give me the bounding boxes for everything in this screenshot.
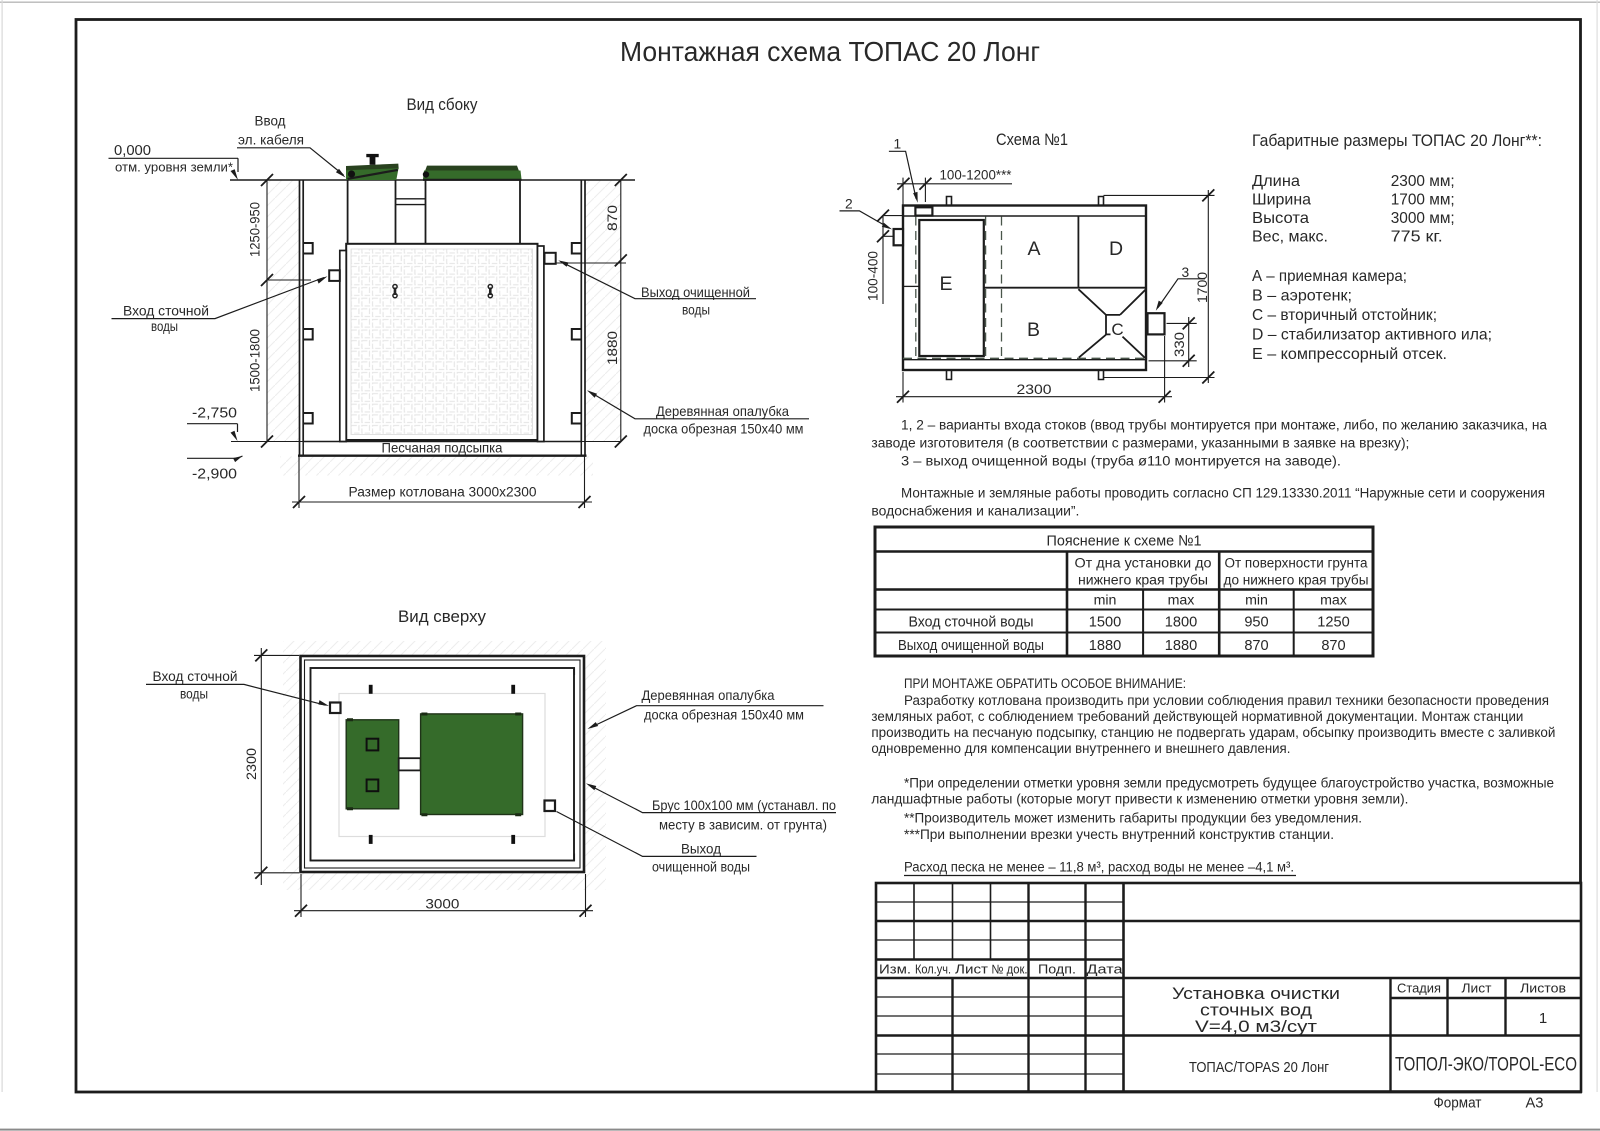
svg-text:Листов: Листов <box>1520 981 1566 996</box>
svg-text:Разработку котлована производи: Разработку котлована производить при усл… <box>904 693 1549 709</box>
svg-text:1700: 1700 <box>1195 272 1210 303</box>
svg-text:земляных работ, с соблюдением: земляных работ, с соблюдением требований… <box>871 709 1523 725</box>
svg-text:1500: 1500 <box>1089 615 1121 631</box>
svg-text:V=4,0 м3/сут: V=4,0 м3/сут <box>1195 1017 1317 1036</box>
svg-text:Монтажные и земляные работы пр: Монтажные и земляные работы проводить со… <box>901 486 1545 502</box>
svg-text:Вход сточной: Вход сточной <box>153 669 238 684</box>
svg-text:2300 мм;: 2300 мм; <box>1391 173 1455 190</box>
svg-text:1250-950: 1250-950 <box>248 202 263 257</box>
svg-text:1, 2 – варианты входа стоков: 1, 2 – варианты входа стоков (ввод трубы… <box>901 418 1547 434</box>
svg-text:Ввод: Ввод <box>255 114 286 129</box>
svg-text:нижнего края трубы: нижнего края трубы <box>1078 573 1208 589</box>
svg-text:D – стабилизатор активного ила: D – стабилизатор активного ила; <box>1252 327 1492 344</box>
svg-text:А – приемная камера;: А – приемная камера; <box>1252 268 1407 285</box>
svg-text:ТОПОЛ-ЭКО/TOPOL-ECO: ТОПОЛ-ЭКО/TOPOL-ECO <box>1395 1055 1577 1076</box>
svg-text:месту в зависим. от грунта): месту в зависим. от грунта) <box>659 818 827 833</box>
svg-text:max: max <box>1320 593 1347 609</box>
svg-text:Схема №1: Схема №1 <box>996 131 1068 149</box>
svg-text:отм. уровня земли*: отм. уровня земли* <box>115 160 233 175</box>
svg-text:очищенной воды: очищенной воды <box>652 860 750 875</box>
svg-text:950: 950 <box>1244 615 1268 631</box>
svg-text:Вид сверху: Вид сверху <box>398 608 487 626</box>
svg-text:Подп.: Подп. <box>1038 962 1076 977</box>
svg-text:доска обрезная 150х40 мм: доска обрезная 150х40 мм <box>644 422 804 437</box>
svg-text:3000 мм;: 3000 мм; <box>1391 210 1455 227</box>
svg-text:эл. кабеля: эл. кабеля <box>238 133 304 148</box>
svg-text:min: min <box>1245 593 1268 609</box>
svg-text:775 кг.: 775 кг. <box>1391 229 1443 246</box>
svg-text:Габаритные размеры ТОПАС 20 Ло: Габаритные размеры ТОПАС 20 Лонг**: <box>1252 131 1542 150</box>
svg-text:Размер котлована 3000х2300: Размер котлована 3000х2300 <box>349 485 537 501</box>
svg-text:Вес, макс.: Вес, макс. <box>1252 229 1328 246</box>
svg-text:870: 870 <box>1321 638 1345 654</box>
svg-text:С: С <box>1111 320 1123 339</box>
svg-text:Деревянная опалубка: Деревянная опалубка <box>656 404 789 419</box>
svg-text:Высота: Высота <box>1252 210 1309 227</box>
svg-text:Монтажная схема ТОПАС 20 Лонг: Монтажная схема ТОПАС 20 Лонг <box>620 36 1040 67</box>
svg-text:1: 1 <box>1539 1010 1547 1027</box>
svg-text:Лист: Лист <box>1462 981 1492 996</box>
svg-text:Ширина: Ширина <box>1252 192 1311 209</box>
svg-text:1880: 1880 <box>1089 638 1121 654</box>
svg-text:100-1200***: 100-1200*** <box>940 168 1013 183</box>
svg-text:Лист: Лист <box>955 962 988 977</box>
svg-text:В: В <box>1027 319 1040 341</box>
svg-text:**Производитель может изменить: **Производитель может изменить габариты … <box>904 811 1362 827</box>
svg-text:Деревянная опалубка: Деревянная опалубка <box>642 688 775 703</box>
svg-text:0,000: 0,000 <box>114 143 151 159</box>
svg-text:Е: Е <box>939 273 952 295</box>
svg-text:*При определении отметки уровн: *При определении отметки уровня земли пр… <box>904 776 1554 792</box>
svg-text:Вход сточной воды: Вход сточной воды <box>909 615 1034 631</box>
svg-text:С – вторичный отстойник;: С – вторичный отстойник; <box>1252 307 1437 324</box>
svg-text:1880: 1880 <box>1165 638 1197 654</box>
svg-text:ТОПАС/TOPAS 20 Лонг: ТОПАС/TOPAS 20 Лонг <box>1189 1060 1329 1076</box>
svg-text:D: D <box>1109 238 1123 260</box>
svg-text:1500-1800: 1500-1800 <box>248 329 263 392</box>
svg-text:1250: 1250 <box>1317 615 1349 631</box>
svg-text:Расход песка не менее – 11,8 м: Расход песка не менее – 11,8 м³, расход … <box>904 860 1294 876</box>
svg-text:3 – выход очищенной воды (труб: 3 – выход очищенной воды (труба ø110 мон… <box>901 454 1341 470</box>
svg-text:Формат: Формат <box>1434 1096 1482 1112</box>
svg-text:2: 2 <box>845 197 853 212</box>
svg-text:100-400: 100-400 <box>866 251 881 301</box>
svg-text:Выход очищенной: Выход очищенной <box>641 285 750 300</box>
svg-text:Выход очищенной воды: Выход очищенной воды <box>898 638 1044 654</box>
svg-text:Кол.уч.: Кол.уч. <box>915 962 951 977</box>
svg-text:2300: 2300 <box>244 748 259 780</box>
svg-text:производить на песчаную подсып: производить на песчаную подсыпку, станци… <box>871 725 1555 741</box>
svg-text:одновременно для компенсации в: одновременно для компенсации внутреннего… <box>871 741 1290 757</box>
svg-text:воды: воды <box>151 319 178 334</box>
svg-text:№ док.: № док. <box>992 962 1028 977</box>
svg-text:Вид сбоку: Вид сбоку <box>407 96 479 114</box>
svg-text:1700 мм;: 1700 мм; <box>1391 192 1455 209</box>
svg-text:330: 330 <box>1172 332 1187 357</box>
svg-text:Стадия: Стадия <box>1397 981 1441 996</box>
svg-text:min: min <box>1094 593 1117 609</box>
svg-text:870: 870 <box>605 205 620 231</box>
svg-text:1: 1 <box>894 137 902 152</box>
svg-text:ландшафтные работы (которые мо: ландшафтные работы (которые могут привес… <box>871 792 1408 808</box>
svg-text:Брус 100х100 мм (устанавл. по: Брус 100х100 мм (устанавл. по <box>652 798 836 813</box>
svg-text:ПРИ МОНТАЖЕ ОБРАТИТЬ ОСОБОЕ ВН: ПРИ МОНТАЖЕ ОБРАТИТЬ ОСОБОЕ ВНИМАНИЕ: <box>904 676 1186 692</box>
svg-text:Дата: Дата <box>1087 962 1124 977</box>
svg-text:1880: 1880 <box>605 331 620 365</box>
svg-text:воды: воды <box>682 303 710 318</box>
svg-text:до нижнего края трубы: до нижнего края трубы <box>1224 573 1369 589</box>
svg-text:А: А <box>1027 238 1040 260</box>
svg-text:2300: 2300 <box>1017 382 1052 398</box>
svg-text:1800: 1800 <box>1165 615 1197 631</box>
svg-text:max: max <box>1168 593 1195 609</box>
svg-text:3000: 3000 <box>425 897 459 913</box>
svg-text:От поверхности грунта: От поверхности грунта <box>1225 556 1368 572</box>
svg-text:Вход сточной: Вход сточной <box>123 304 209 319</box>
svg-text:3: 3 <box>1182 265 1190 280</box>
svg-text:доска обрезная 150х40 мм: доска обрезная 150х40 мм <box>644 708 804 723</box>
svg-text:заводе изготовителя (в соответ: заводе изготовителя (в соответствии с ра… <box>871 436 1409 452</box>
svg-text:***При выполнении врезки учест: ***При выполнении врезки учесть внутренн… <box>904 827 1334 843</box>
svg-text:В – аэротенк;: В – аэротенк; <box>1252 288 1352 305</box>
svg-text:От дна установки до: От дна установки до <box>1075 556 1212 572</box>
svg-text:-2,900: -2,900 <box>192 467 237 483</box>
svg-text:Выход: Выход <box>681 842 721 857</box>
svg-text:воды: воды <box>180 687 208 702</box>
svg-text:А3: А3 <box>1526 1096 1544 1112</box>
svg-text:водоснабжения и канализации”.: водоснабжения и канализации”. <box>871 504 1079 520</box>
svg-text:-2,750: -2,750 <box>192 406 237 422</box>
svg-text:870: 870 <box>1244 638 1268 654</box>
svg-text:Пояснение к схеме №1: Пояснение к схеме №1 <box>1047 533 1202 550</box>
svg-text:Е – компрессорный отсек.: Е – компрессорный отсек. <box>1252 346 1447 363</box>
svg-text:Длина: Длина <box>1252 173 1300 190</box>
svg-text:Изм.: Изм. <box>879 962 911 977</box>
